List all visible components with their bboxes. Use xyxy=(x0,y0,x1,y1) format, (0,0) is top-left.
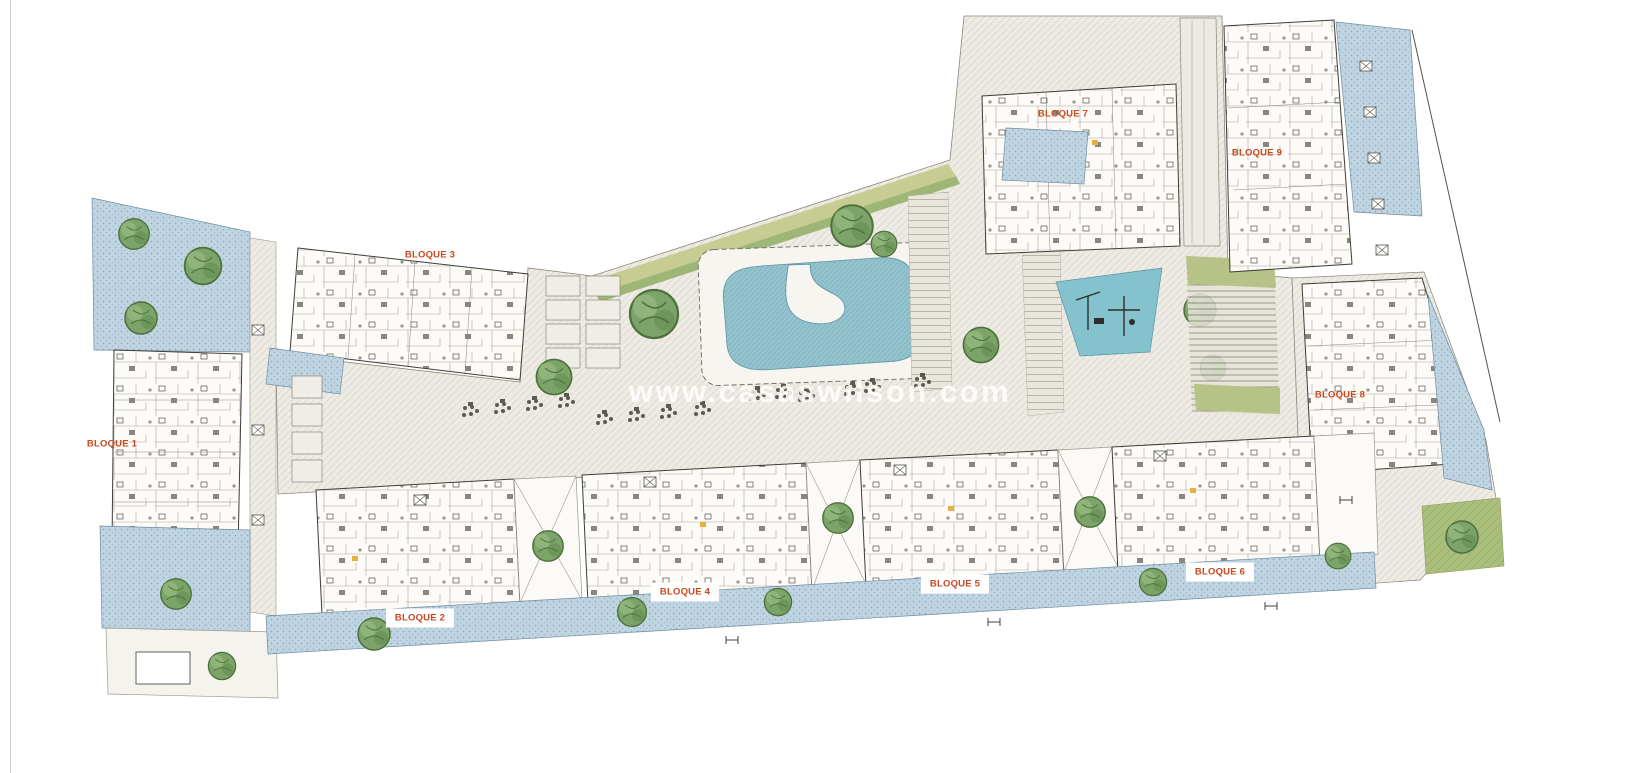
section-mark-icon xyxy=(1265,602,1277,610)
block-label-bloque-5: BLOQUE 5 xyxy=(921,575,989,594)
tree-icon xyxy=(764,588,791,615)
pool-area xyxy=(698,242,935,386)
ac-unit-icon xyxy=(1154,451,1166,461)
ac-unit-icon xyxy=(644,477,656,487)
tree-icon xyxy=(125,302,157,334)
watermark: www.casaswilson.com xyxy=(629,374,1011,410)
tree-icon xyxy=(185,248,222,285)
ac-unit-icon xyxy=(1368,153,1380,163)
play-equipment-icon xyxy=(1129,319,1135,325)
tree-icon xyxy=(161,579,191,609)
stairs-hedge-bottom xyxy=(1194,384,1280,414)
tree-icon xyxy=(119,219,149,249)
garage-structure xyxy=(136,652,190,684)
tree-icon xyxy=(618,598,647,627)
block-label-bloque-8: BLOQUE 8 xyxy=(1315,390,1365,401)
ac-unit-icon xyxy=(1364,107,1376,117)
ac-unit-icon xyxy=(414,495,426,505)
block-label-bloque-4: BLOQUE 4 xyxy=(651,583,719,602)
block-label-bloque-7: BLOQUE 7 xyxy=(1038,109,1088,120)
bloque-1-terrace-north xyxy=(92,198,250,352)
bloque-7-terrace xyxy=(1002,128,1088,184)
bloque-9-terrace xyxy=(1336,22,1422,216)
row-end-court xyxy=(1314,433,1378,559)
bloque-1-building xyxy=(112,350,242,552)
tree-icon xyxy=(533,531,563,561)
door-marker xyxy=(948,506,954,511)
block-label-bloque-2: BLOQUE 2 xyxy=(386,609,454,628)
tree-icon xyxy=(630,290,678,338)
tree-icon xyxy=(831,205,873,247)
tree-icon xyxy=(536,359,571,394)
north-driveway xyxy=(1180,18,1220,246)
tree-icon xyxy=(963,327,998,362)
door-marker xyxy=(1092,140,1098,145)
tree-icon xyxy=(823,503,853,533)
bloque-5-building xyxy=(860,450,1064,587)
southwest-service-yard xyxy=(106,628,278,698)
ac-unit-icon xyxy=(252,325,264,335)
tree-icon xyxy=(1075,497,1105,527)
bloque-6-building xyxy=(1112,436,1320,572)
ac-unit-icon xyxy=(1360,61,1372,71)
ac-unit-icon xyxy=(252,425,264,435)
door-marker xyxy=(1190,488,1196,493)
block-label-bloque-9: BLOQUE 9 xyxy=(1232,148,1282,159)
section-mark-icon xyxy=(726,636,738,644)
door-marker xyxy=(352,556,358,561)
walkway-west-of-playground xyxy=(1022,246,1064,416)
tree-icon xyxy=(1446,521,1478,553)
door-marker xyxy=(700,522,706,527)
tree-icon xyxy=(1139,568,1166,595)
section-mark-icon xyxy=(988,618,1000,626)
block-label-bloque-3: BLOQUE 3 xyxy=(405,250,455,261)
tree-icon xyxy=(1325,543,1351,569)
play-equipment-icon xyxy=(1094,318,1104,324)
bloque-9-building xyxy=(1224,20,1352,272)
ac-unit-icon xyxy=(894,465,906,475)
ac-unit-icon xyxy=(252,515,264,525)
block-label-bloque-6: BLOQUE 6 xyxy=(1186,563,1254,582)
tree-icon xyxy=(871,231,897,257)
site-plan-page: BLOQUE 1 BLOQUE 2 BLOQUE 3 BLOQUE 4 BLOQ… xyxy=(0,0,1638,773)
block-label-bloque-1: BLOQUE 1 xyxy=(87,439,137,450)
ac-unit-icon xyxy=(1372,199,1384,209)
tree-icon xyxy=(208,652,235,679)
walkway-west-of-plaza xyxy=(908,192,952,392)
ac-unit-icon xyxy=(1376,245,1388,255)
